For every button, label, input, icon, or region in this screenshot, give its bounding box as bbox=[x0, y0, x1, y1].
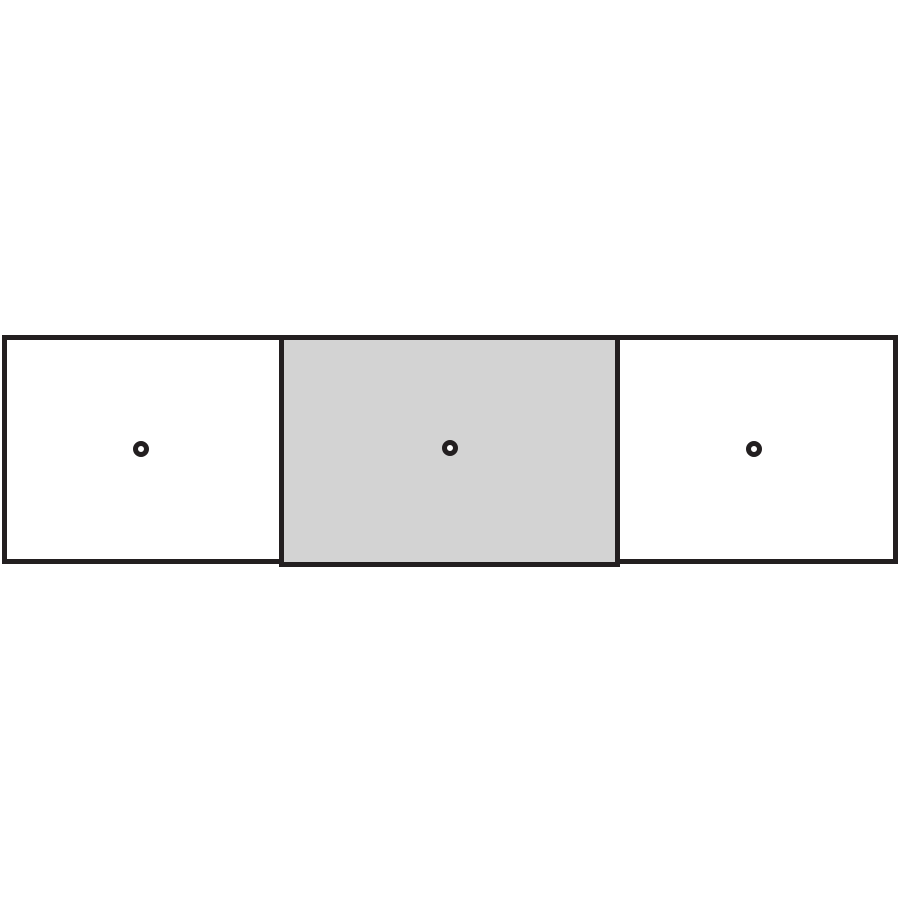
diagram-canvas bbox=[0, 0, 900, 900]
hole-icon bbox=[746, 441, 762, 457]
panel-middle bbox=[279, 335, 620, 567]
hole-icon bbox=[442, 440, 458, 456]
panel-right bbox=[615, 335, 898, 564]
panel-left bbox=[2, 335, 284, 564]
hole-icon bbox=[133, 441, 149, 457]
